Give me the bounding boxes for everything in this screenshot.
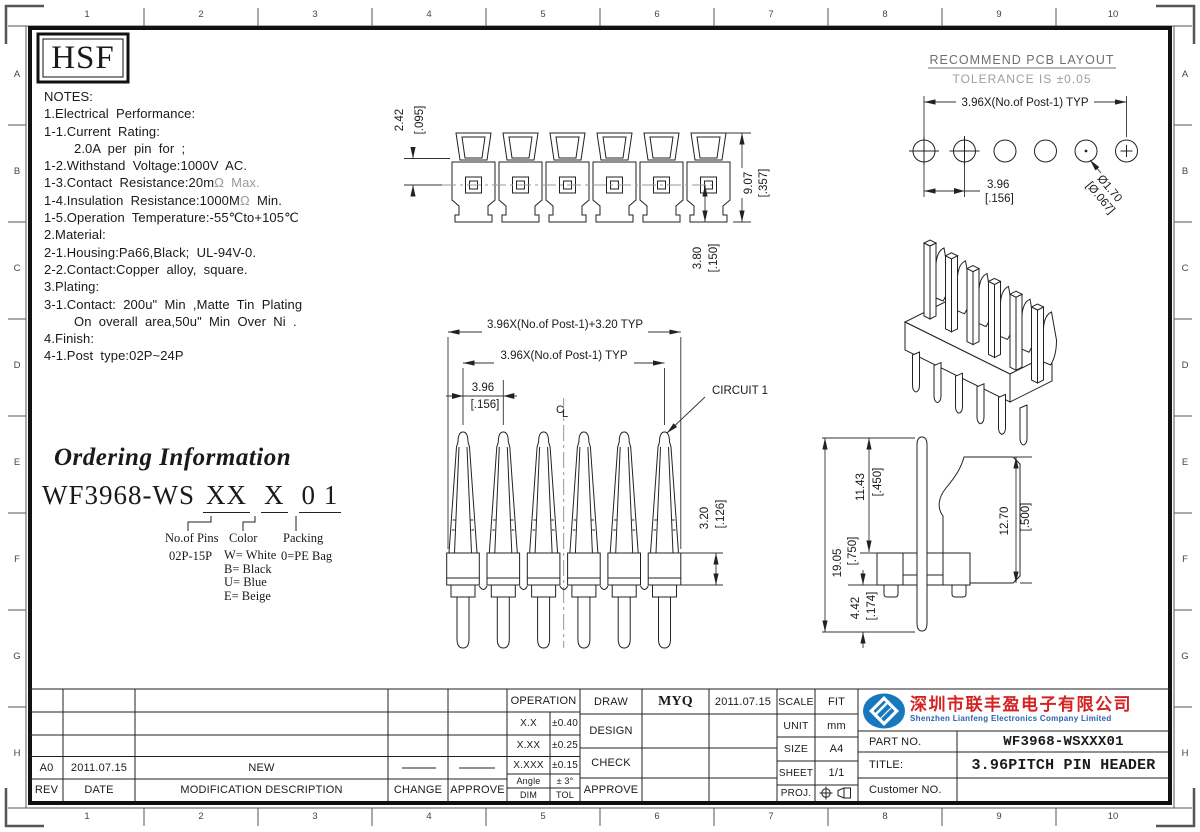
size-value: A4: [815, 737, 858, 761]
part-number-packing-code: 0 1: [299, 480, 342, 513]
zone-number: 4: [419, 811, 439, 822]
zone-number: 3: [305, 9, 325, 20]
draw-label: DRAW: [580, 689, 642, 714]
scale-label: SCALE: [777, 689, 815, 714]
zone-number: 3: [305, 811, 325, 822]
note-line: On overall area,50u" Min Over Ni .: [44, 313, 302, 330]
tol-value: ±0.25: [550, 735, 580, 756]
zone-number: 9: [989, 9, 1009, 20]
note-line: 3-1.Contact: 200u" Min ,Matte Tin Platin…: [44, 296, 302, 313]
zone-letter: A: [1177, 69, 1193, 80]
zone-number: 6: [647, 811, 667, 822]
pcb-pitch-arrow: [954, 188, 965, 194]
revision-header-rev: REV: [30, 779, 63, 800]
pin-view: 3.96X(No.of Post-1)+3.20 TYP 3.96X(No.of…: [446, 319, 768, 648]
tol-value: TOL: [550, 788, 580, 801]
zone-number: 6: [647, 9, 667, 20]
dim-body-in: [.126]: [715, 500, 727, 529]
zone-number: 7: [761, 9, 781, 20]
tol-value: ± 3°: [550, 774, 580, 788]
dim-total-in: [.750]: [847, 537, 859, 566]
title-label: TITLE:: [862, 752, 961, 778]
tol-value: ±0.15: [550, 756, 580, 774]
front-view: 2.42 [.095] 9.07 [.357] 3.80 [.150]: [394, 106, 770, 273]
pcb-pitch-in: [.156]: [985, 193, 1014, 205]
note-line: 1-4.Insulation Resistance:1000MΩ Min.: [44, 192, 302, 209]
dim-below-mm: 3.80: [692, 247, 704, 269]
zone-letter: C: [1177, 263, 1193, 274]
dim-upper-mm: 11.43: [855, 473, 867, 501]
size-label: SIZE: [777, 737, 815, 761]
ordering-leaders: [188, 516, 296, 531]
unit-value: mm: [815, 714, 858, 737]
note-segment-gray: Ω Max.: [214, 175, 260, 190]
zone-letter: A: [9, 69, 25, 80]
dim-sideheight-in: [.500]: [1020, 503, 1032, 532]
dim-height-in: [.357]: [758, 169, 770, 198]
pcb-pitch-mm: 3.96: [987, 179, 1009, 191]
note-segment: 1-3.Contact Resistance:20m: [44, 175, 214, 190]
note-segment: Min.: [250, 193, 282, 208]
note-segment: 1-4.Insulation Resistance:1000M: [44, 193, 240, 208]
tol-value: ±0.40: [550, 712, 580, 735]
operation-header: OPERATION: [507, 689, 580, 712]
ordering-title: Ordering Information: [54, 444, 291, 472]
zone-letter: B: [1177, 166, 1193, 177]
title-value: 3.96PITCH PIN HEADER: [957, 752, 1170, 778]
zone-letter: G: [9, 651, 25, 662]
side-view: 11.43 [.450] 19.05 [.750] 4.42 [.174] 12…: [822, 437, 1032, 648]
company-logo-icon: [863, 694, 905, 729]
dim-total-mm: 19.05: [832, 549, 844, 578]
color-legend-label: Color: [229, 531, 257, 546]
note-line: 1-3.Contact Resistance:20mΩ Max.: [44, 174, 302, 191]
note-segment-gray: Ω: [240, 193, 250, 208]
zone-number: 5: [533, 811, 553, 822]
zone-letter: H: [1177, 748, 1193, 759]
color-option: E= Beige: [224, 590, 276, 604]
unit-label: UNIT: [777, 714, 815, 737]
tol-label: X.XX: [507, 735, 550, 756]
front-view-body: [452, 133, 730, 222]
dim-body-mm: 3.20: [699, 507, 711, 529]
part-no-label: PART NO.: [862, 731, 961, 752]
pcb-holes: [913, 140, 1138, 162]
customer-no-label: Customer NO.: [862, 778, 961, 801]
note-line: 1-1.Current Rating:: [44, 123, 302, 140]
pcb-subtitle: TOLERANCE IS ±0.05: [952, 72, 1091, 86]
tol-label: DIM: [507, 788, 550, 801]
pcb-layout: RECOMMEND PCB LAYOUT TOLERANCE IS ±0.05 …: [909, 53, 1138, 216]
tol-label: X.X: [507, 712, 550, 735]
company-name-cn: 深圳市联丰盈电子有限公司: [910, 692, 1166, 713]
packing-legend-label: Packing: [283, 531, 323, 546]
pcb-hole-marks: [909, 136, 1133, 166]
sheet-label: SHEET: [777, 761, 815, 785]
zone-letter: D: [1177, 360, 1193, 371]
dim-clip-in: [.095]: [414, 106, 426, 135]
dim-sideheight-mm: 12.70: [999, 507, 1011, 536]
color-option: W= White: [224, 549, 276, 563]
revision-desc-value: NEW: [135, 757, 388, 779]
company-name-en: Shenzhen Lianfeng Electronics Company Li…: [910, 712, 1166, 724]
note-line: 1-5.Operation Temperature:-55℃to+105℃: [44, 209, 302, 226]
zone-number: 1: [77, 9, 97, 20]
dim-span: 3.96X(No.of Post-1) TYP: [501, 350, 628, 362]
revision-header-approve: APPROVE: [448, 779, 507, 800]
revision-rev-value: A0: [30, 757, 63, 779]
pitch-arrow-right: [503, 393, 514, 399]
notes-block: NOTES: 1.Electrical Performance: 1-1.Cur…: [44, 88, 302, 365]
packing-legend-value: 0=PE Bag: [281, 549, 332, 564]
note-line: 2.0A per pin for ;: [44, 140, 302, 157]
dim-pitch-mm: 3.96: [472, 382, 494, 394]
dim-pitch-in: [.156]: [471, 399, 500, 411]
zone-letter: H: [9, 748, 25, 759]
approve-label: APPROVE: [580, 778, 642, 801]
dim-height-mm: 9.07: [743, 172, 755, 194]
part-number-pins-code: XX: [203, 480, 250, 513]
pcb-title: RECOMMEND PCB LAYOUT: [929, 53, 1114, 67]
note-line: 2-2.Contact:Copper alloy, square.: [44, 261, 302, 278]
pcb-span-dim: 3.96X(No.of Post-1) TYP: [962, 97, 1089, 109]
scale-value: FIT: [815, 689, 858, 714]
revision-header-change: CHANGE: [388, 779, 448, 800]
pins-legend-label: No.of Pins: [165, 531, 218, 546]
revision-date-value: 2011.07.15: [63, 757, 135, 779]
pcb-hole-center-dot: [1085, 150, 1088, 153]
design-label: DESIGN: [580, 714, 642, 748]
zone-letter: F: [1177, 554, 1193, 565]
zone-number: 1: [77, 811, 97, 822]
zone-number: 7: [761, 811, 781, 822]
zone-number: 2: [191, 811, 211, 822]
dim-upper-in: [.450]: [872, 468, 884, 497]
note-line: 2-1.Housing:Pa66,Black; UL-94V-0.: [44, 244, 302, 261]
zone-number: 9: [989, 811, 1009, 822]
zone-letter: E: [1177, 457, 1193, 468]
note-line: 4.Finish:: [44, 330, 302, 347]
note-line: 2.Material:: [44, 226, 302, 243]
dim-lower-in: [.174]: [866, 592, 878, 621]
note-line: NOTES:: [44, 88, 302, 105]
projection-symbol-icon: [820, 787, 851, 800]
dim-clip-mm: 2.42: [394, 109, 406, 131]
pitch-arrow-left: [452, 393, 463, 399]
note-line: 1-2.Withstand Voltage:1000V AC.: [44, 157, 302, 174]
engineering-drawing-sheet: 2.42 [.095] 9.07 [.357] 3.80 [.150] RECO…: [0, 0, 1200, 832]
draw-date: 2011.07.15: [709, 689, 777, 714]
zone-number: 5: [533, 9, 553, 20]
proj-label: PROJ.: [777, 785, 815, 801]
ordering-part-number: WF3968-WSXXX0 1: [42, 480, 341, 513]
sheet-value: 1/1: [815, 761, 858, 785]
zone-letter: F: [9, 554, 25, 565]
zone-number: 8: [875, 9, 895, 20]
note-line: 4-1.Post type:02P~24P: [44, 347, 302, 364]
dim-total: 3.96X(No.of Post-1)+3.20 TYP: [487, 319, 643, 331]
note-line: 3.Plating:: [44, 278, 302, 295]
color-legend-options: W= White B= Black U= Blue E= Beige: [224, 549, 276, 603]
tol-label: Angle: [507, 774, 550, 788]
draw-name: MYQ: [642, 689, 709, 714]
isometric-view: [905, 240, 1057, 445]
dim-below-in: [.150]: [708, 244, 720, 273]
zone-number: 4: [419, 9, 439, 20]
zone-number: 10: [1103, 811, 1123, 822]
circuit-1-label: CIRCUIT 1: [712, 385, 768, 397]
check-label: CHECK: [580, 748, 642, 778]
zone-number: 10: [1103, 9, 1123, 20]
zone-number: 2: [191, 9, 211, 20]
part-number-color-code: X: [261, 480, 288, 513]
zone-letter: G: [1177, 651, 1193, 662]
dim-lower-mm: 4.42: [850, 597, 862, 619]
revision-header-date: DATE: [63, 779, 135, 800]
zone-number: 8: [875, 811, 895, 822]
color-option: U= Blue: [224, 576, 276, 590]
hsf-logo-text: HSF: [38, 34, 128, 82]
zone-letter: D: [9, 360, 25, 371]
pins-legend-value: 02P-15P: [169, 549, 212, 564]
zone-letter: B: [9, 166, 25, 177]
part-no-value: WF3968-WSXXX01: [957, 731, 1170, 752]
note-line: 1.Electrical Performance:: [44, 105, 302, 122]
zone-letter: C: [9, 263, 25, 274]
zone-letter: E: [9, 457, 25, 468]
part-number-base: WF3968-WS: [42, 480, 195, 510]
color-option: B= Black: [224, 563, 276, 577]
centerline-symbol-l: L: [562, 408, 568, 420]
tol-label: X.XXX: [507, 756, 550, 774]
revision-header-desc: MODIFICATION DESCRIPTION: [135, 779, 388, 800]
